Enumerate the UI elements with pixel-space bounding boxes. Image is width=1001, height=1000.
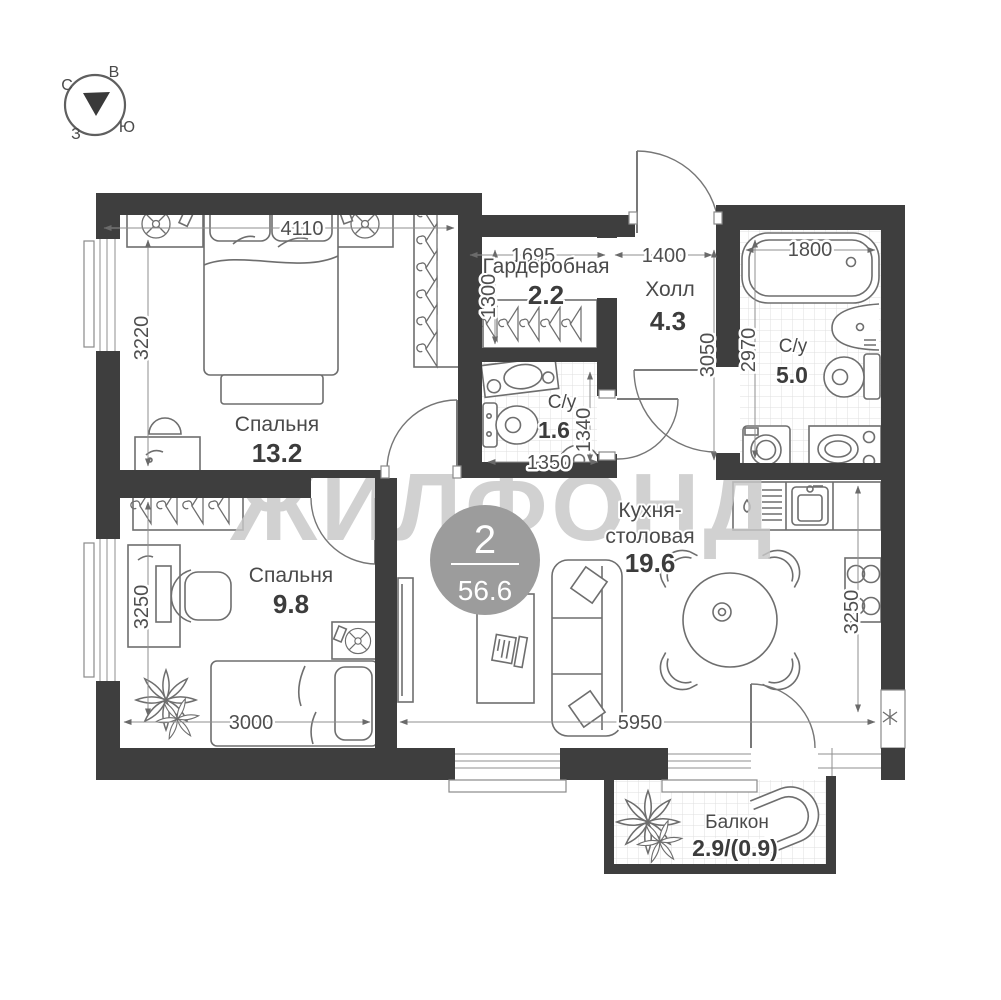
door-jamb — [599, 390, 615, 398]
compass-west: З — [71, 126, 81, 143]
wall — [311, 470, 387, 478]
window-kitchen-2 — [662, 754, 757, 792]
dim-kitchen-width: 5950 — [618, 712, 663, 734]
dim-bathroom-small-depth: 1340 — [573, 408, 595, 453]
dim-bedroom2-depth: 3250 — [131, 585, 153, 630]
wall — [96, 351, 120, 539]
stool — [149, 418, 181, 434]
hanger-icon — [417, 278, 437, 313]
window-kitchen-3 — [818, 748, 881, 780]
kitchen-name-line1: Кухня- — [618, 499, 681, 522]
hanger-icon — [417, 332, 437, 367]
wall — [96, 748, 455, 780]
toilet — [824, 354, 880, 399]
floor-plan-canvas: ЖИЛФОНД — [0, 0, 1001, 1000]
door-jamb — [381, 466, 389, 478]
nightstand — [332, 622, 378, 659]
hanger-icon — [562, 307, 581, 340]
kitchen-area: 19.6 — [625, 548, 676, 578]
wall — [740, 205, 905, 230]
wall — [96, 193, 482, 215]
entry-door — [637, 151, 719, 233]
wall — [482, 348, 597, 362]
bathroom-large-name: С/у — [779, 336, 808, 357]
hanger-icon — [417, 305, 437, 340]
plant-icon — [136, 670, 204, 746]
dim-bedroom2-width: 3000 — [229, 712, 274, 734]
wall — [597, 298, 617, 396]
window-bedroom2 — [84, 539, 115, 681]
compass-arrow-icon — [83, 92, 110, 116]
wall — [597, 232, 617, 238]
badge-rooms-count: 2 — [474, 518, 496, 562]
hall-area: 4.3 — [650, 306, 686, 336]
hanger-icon — [417, 224, 437, 259]
badge-total-area: 56.6 — [458, 575, 513, 606]
compass-north: С — [61, 77, 73, 94]
wall — [716, 463, 905, 480]
compass-south: Ю — [119, 119, 135, 136]
bathroom-small-name: С/у — [548, 392, 577, 413]
chair-icon — [651, 653, 698, 700]
wall — [560, 748, 668, 780]
sofa — [552, 560, 622, 736]
balcony-area: 2.9/(0.9) — [692, 835, 778, 861]
wall — [375, 478, 397, 498]
wardrobe-area: 2.2 — [528, 280, 564, 310]
tv-console — [398, 578, 413, 702]
wall — [716, 237, 740, 367]
wardrobe-name: Гардеробная — [482, 255, 609, 278]
bedroom2-area: 9.8 — [273, 589, 309, 619]
dim-hall-width: 1400 — [642, 245, 687, 267]
wall — [375, 498, 397, 748]
window-kitchen-1 — [449, 754, 566, 792]
bedroom2-name: Спальня — [249, 564, 333, 587]
door-jamb — [599, 452, 615, 460]
wall — [881, 230, 905, 690]
bedroom1-name: Спальня — [235, 413, 319, 436]
window-bedroom1 — [84, 239, 115, 351]
wall — [881, 748, 905, 780]
hanger-icon — [541, 307, 560, 340]
hanger-icon — [520, 307, 539, 340]
door-jamb — [714, 212, 722, 224]
balcony-door — [751, 684, 815, 748]
area-badge: 2 56.6 — [430, 505, 540, 615]
lamp-icon — [345, 628, 370, 653]
wall — [96, 470, 311, 498]
door-jamb — [453, 466, 461, 478]
compass-east: В — [109, 64, 120, 81]
bathroom-small-area: 1.6 — [538, 417, 570, 443]
toilet — [483, 403, 538, 447]
balcony-name: Балкон — [705, 812, 769, 833]
bedroom1-area: 13.2 — [252, 438, 303, 468]
dim-bathroom-large-width: 1800 — [788, 239, 833, 261]
compass: С В З Ю — [61, 64, 135, 143]
door-jamb — [629, 212, 637, 224]
wall — [96, 681, 120, 748]
hall-name: Холл — [645, 278, 695, 301]
wall — [458, 215, 482, 470]
dim-bathroom-small-width: 1350 — [527, 452, 572, 474]
bathroom-large-door — [634, 370, 716, 452]
dim-bedroom1-width: 4110 — [280, 218, 323, 240]
dim-wardrobe-depth: 1300 — [478, 274, 500, 319]
bathroom-large-area: 5.0 — [776, 362, 808, 388]
dim-bathroom-large-depth: 2970 — [738, 328, 760, 373]
chair-icon — [763, 653, 810, 700]
kitchen-name-line2: столовая — [605, 525, 694, 548]
hanger-icon — [417, 251, 437, 286]
dim-kitchen-depth: 3250 — [841, 590, 863, 635]
pillow — [335, 667, 372, 740]
dim-bedroom1-depth: 3220 — [131, 316, 153, 361]
floor-plan-page: ЖИЛФОНД — [0, 0, 1001, 1000]
bed-bench — [221, 375, 323, 404]
dim-hall-depth: 3050 — [697, 333, 719, 378]
bathroom-small-door — [617, 399, 678, 459]
wardrobe-strip — [414, 197, 460, 367]
hanger-icon — [499, 307, 518, 340]
dining-table — [683, 573, 777, 667]
